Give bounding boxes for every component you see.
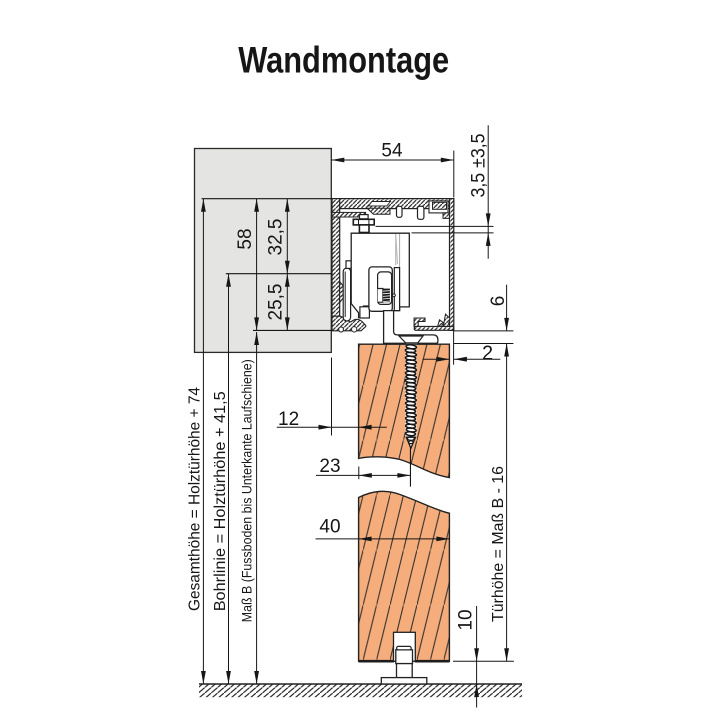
svg-text:12: 12 [278,409,299,430]
svg-text:Wandmontage: Wandmontage [238,40,449,81]
svg-text:23: 23 [319,456,340,477]
svg-text:10: 10 [456,609,477,630]
svg-text:32,5: 32,5 [266,219,287,256]
svg-text:54: 54 [381,141,403,162]
svg-text:40: 40 [319,517,340,538]
svg-text:3,5 ±3,5: 3,5 ±3,5 [469,134,490,198]
svg-text:25,5: 25,5 [266,284,287,321]
svg-text:2: 2 [482,343,493,365]
svg-text:6: 6 [488,296,509,307]
svg-text:Türhöhe = Maß B - 16: Türhöhe = Maß B - 16 [490,466,507,622]
svg-text:Maß B (Fussboden bis Unterkant: Maß B (Fussboden bis Unterkante Laufschi… [240,359,255,622]
svg-text:Bohrlinie = Holztürhöhe + 41,5: Bohrlinie = Holztürhöhe + 41,5 [212,391,229,611]
svg-text:Gesamthöhe = Holztürhöhe + 74: Gesamthöhe = Holztürhöhe + 74 [187,387,204,611]
svg-text:58: 58 [235,228,256,249]
